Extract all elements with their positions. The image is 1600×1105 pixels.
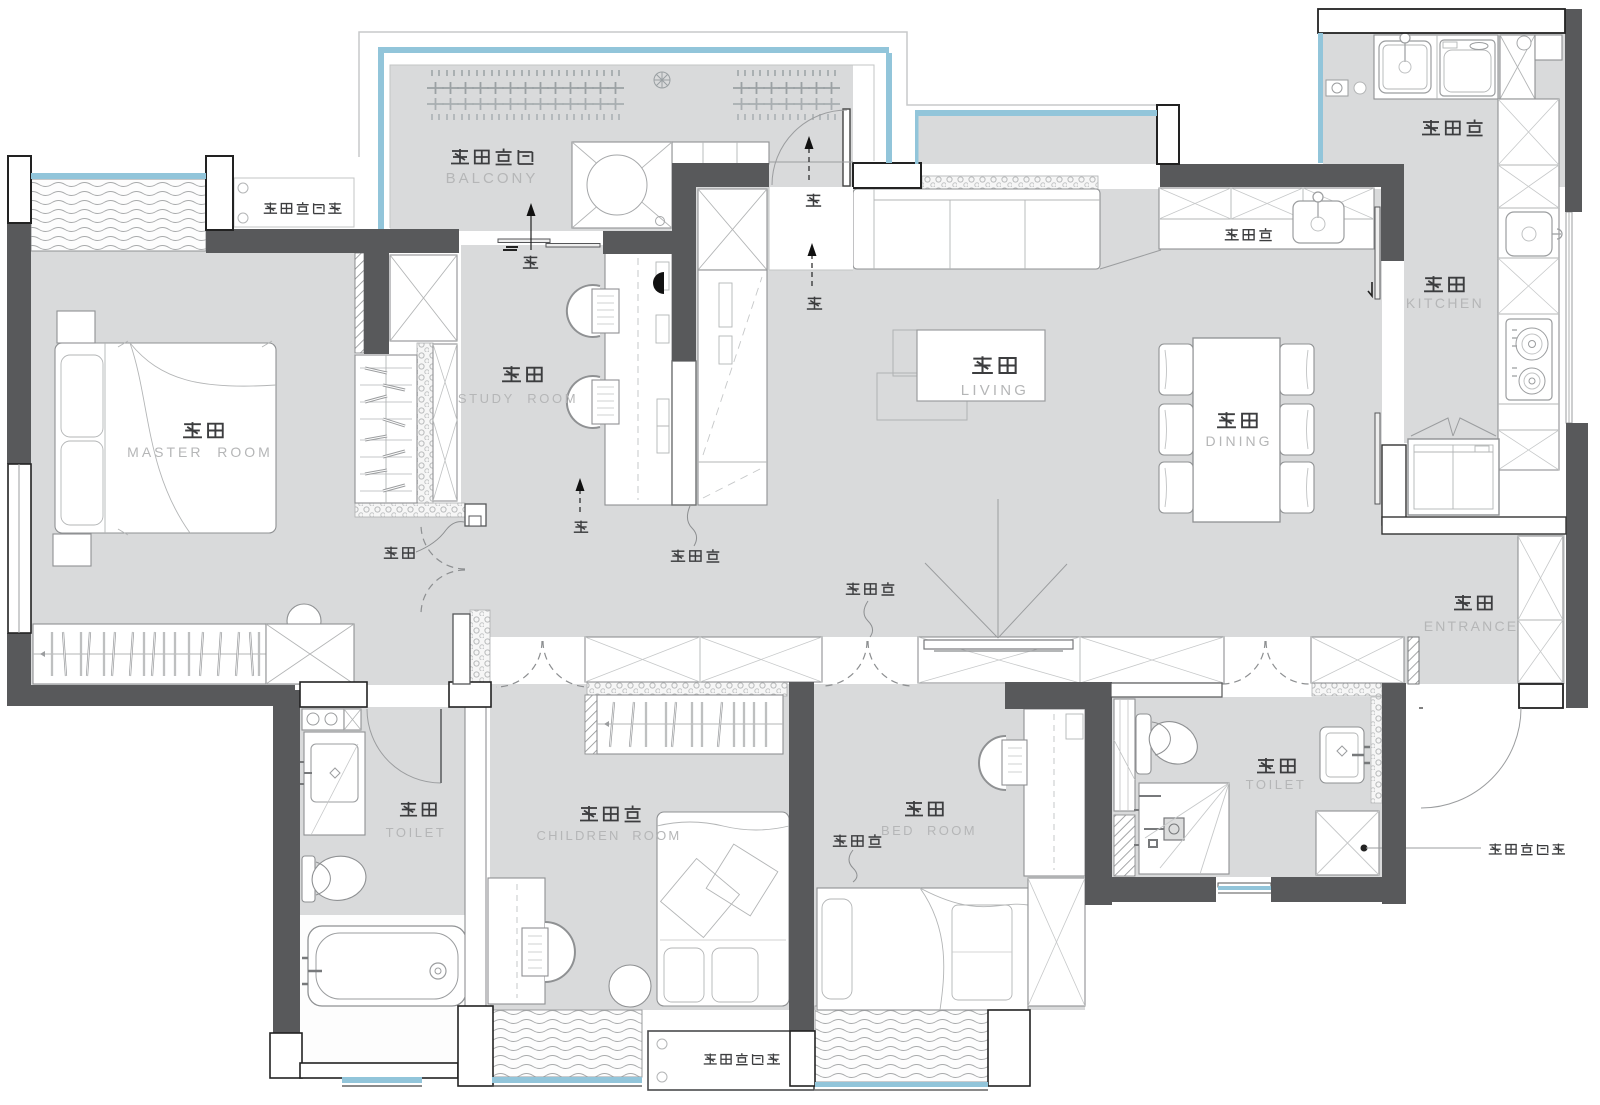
- svg-text:DINING: DINING: [1206, 433, 1273, 449]
- svg-text:STUDY ROOM: STUDY ROOM: [458, 391, 578, 406]
- svg-text:LIVING: LIVING: [961, 382, 1029, 399]
- svg-text:TOILET: TOILET: [1246, 777, 1307, 792]
- svg-text:ENTRANCE: ENTRANCE: [1424, 618, 1519, 634]
- svg-text:KITCHEN: KITCHEN: [1406, 295, 1484, 311]
- svg-text:TOILET: TOILET: [386, 825, 447, 840]
- svg-text:MASTER ROOM: MASTER ROOM: [127, 444, 273, 460]
- svg-text:BALCONY: BALCONY: [446, 170, 539, 187]
- svg-text:BED ROOM: BED ROOM: [881, 823, 977, 838]
- svg-text:CHILDREN ROOM: CHILDREN ROOM: [537, 828, 682, 843]
